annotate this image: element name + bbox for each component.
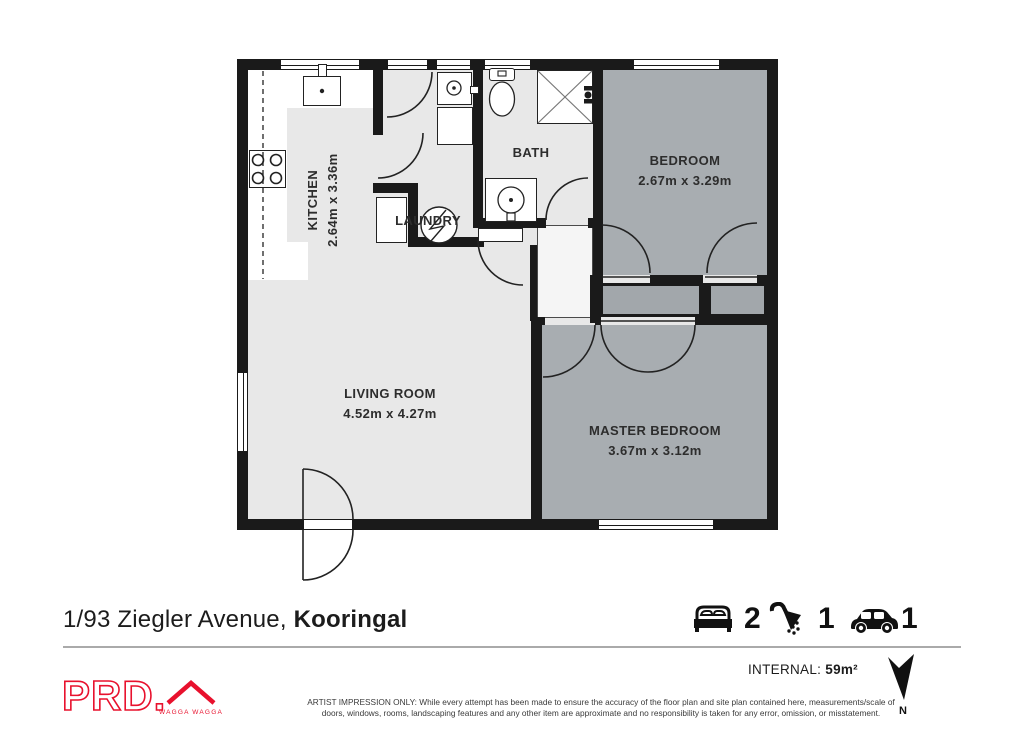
car-icon [849, 606, 899, 634]
label-laundry: LAUNDRY [368, 211, 488, 231]
label-master: MASTER BEDROOM 3.67m x 3.12m [565, 421, 745, 461]
master-name: MASTER BEDROOM [565, 421, 745, 441]
address-suburb: Kooringal [294, 606, 408, 633]
bedroom-dims: 2.67m x 3.29m [605, 171, 765, 191]
shower-details [538, 71, 595, 123]
master-robe-arc-right [648, 325, 695, 372]
laundry-door-arc-1 [387, 72, 432, 117]
label-bedroom: BEDROOM 2.67m x 3.29m [605, 151, 765, 191]
label-bath: BATH [471, 143, 591, 163]
shower-icon [769, 602, 807, 636]
address-street: 1/93 Ziegler Avenue, [63, 606, 294, 633]
kitchen-name: KITCHEN [303, 140, 323, 260]
toilet-bowl [490, 71, 515, 116]
prd-logo: PRD. WAGGA WAGGA [60, 670, 230, 720]
prd-location-text: WAGGA WAGGA [159, 709, 223, 716]
floorplan-page: KITCHEN 2.64m x 3.36m LAUNDRY BATH BEDRO… [0, 0, 1024, 756]
master-dims: 3.67m x 3.12m [565, 441, 745, 461]
front-door-arc-out [303, 530, 353, 580]
label-living: LIVING ROOM 4.52m x 4.27m [310, 384, 470, 424]
bath-name: BATH [471, 143, 591, 163]
bed-icon [693, 604, 733, 634]
front-door-arc-in [303, 469, 353, 519]
bedroom-robe2-arc [707, 223, 757, 273]
bedroom-robe1-arc [602, 225, 650, 273]
internal-value: 59m² [825, 662, 858, 677]
bath-door-arc [546, 178, 588, 220]
internal-area: INTERNAL: 59m² [748, 662, 868, 677]
disclaimer: ARTIST IMPRESSION ONLY: While every atte… [240, 697, 962, 719]
prd-logo-text: PRD. [62, 672, 166, 719]
laundry-name: LAUNDRY [368, 211, 488, 231]
car-count: 1 [901, 602, 918, 636]
plan-linework [237, 59, 778, 589]
disclaimer-line2: doors, windows, rooms, landscaping featu… [240, 708, 962, 719]
bath-count: 1 [818, 602, 835, 636]
internal-label: INTERNAL: [748, 662, 825, 677]
living-name: LIVING ROOM [310, 384, 470, 404]
master-door-arc [543, 325, 595, 377]
bed-count: 2 [744, 602, 761, 636]
master-robe-arc-left [601, 325, 648, 372]
footer-divider [63, 646, 961, 648]
kitchen-dims: 2.64m x 3.36m [323, 140, 343, 260]
living-dims: 4.52m x 4.27m [310, 404, 470, 424]
floor-plan: KITCHEN 2.64m x 3.36m LAUNDRY BATH BEDRO… [237, 59, 778, 530]
laundry-door-arc-2 [378, 133, 423, 178]
bedroom-name: BEDROOM [605, 151, 765, 171]
prd-roof-icon [168, 683, 214, 703]
label-kitchen: KITCHEN 2.64m x 3.36m [303, 140, 343, 260]
stove-burners [253, 155, 282, 184]
disclaimer-line1: ARTIST IMPRESSION ONLY: While every atte… [240, 697, 962, 708]
property-address: 1/93 Ziegler Avenue, Kooringal [63, 606, 407, 634]
hall-door-arc [478, 240, 523, 285]
